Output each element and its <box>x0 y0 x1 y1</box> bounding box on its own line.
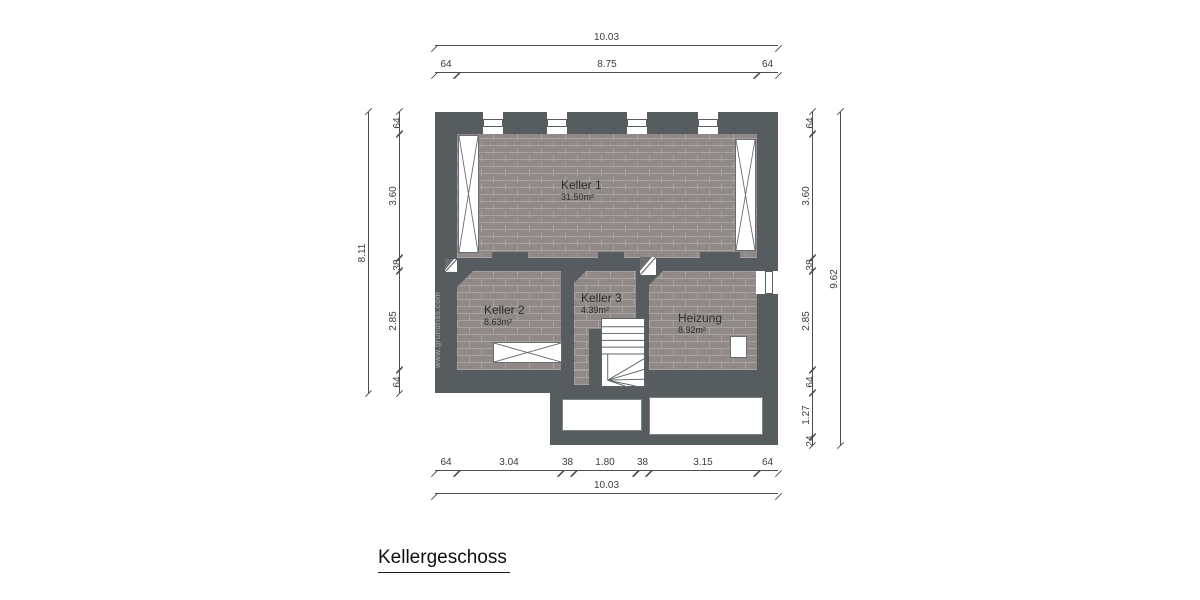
dim-label: 64 <box>392 376 403 387</box>
extension-opening-left <box>562 399 642 431</box>
dim-bottom-seg-2: 38 <box>561 456 574 471</box>
room-label-keller2: Keller 2 8.63m² <box>484 304 525 328</box>
dim-left-seg-3: 2.85 <box>385 271 400 370</box>
room-area: 8.92m² <box>678 325 722 335</box>
dim-right-seg-3: 2.85 <box>798 271 813 370</box>
chimney-block <box>730 336 747 358</box>
dim-right-seg-6: 24 <box>798 437 813 445</box>
dim-bottom-seg-1: 3.04 <box>457 456 561 471</box>
extension-opening-right <box>649 397 763 435</box>
room-name: Heizung <box>678 312 722 325</box>
x-brace-icon <box>459 136 478 252</box>
dim-bottom-total: 10.03 <box>435 479 778 494</box>
dim-label: 3.60 <box>388 186 399 205</box>
window-icon <box>483 112 503 134</box>
dim-right-seg-2: 38 <box>798 258 813 271</box>
dim-label: 2.85 <box>388 311 399 330</box>
room-name: Keller 2 <box>484 304 525 317</box>
dim-label: 3.15 <box>693 457 712 468</box>
dim-label: 3.04 <box>499 457 518 468</box>
door-swing-icon <box>640 257 656 275</box>
wall-pilaster <box>492 252 528 258</box>
dim-right-seg-0: 64 <box>798 112 813 134</box>
dim-left-seg-4: 64 <box>385 370 400 393</box>
stair-treads-icon <box>602 319 644 386</box>
dim-bottom-seg-4: 38 <box>636 456 649 471</box>
dim-label: 24 <box>805 435 816 446</box>
window-icon <box>698 112 718 134</box>
dim-bottom-seg-0: 64 <box>435 456 457 471</box>
dim-right-total: 9.62 <box>826 112 841 445</box>
room-label-keller3: Keller 3 4.39m² <box>581 292 622 316</box>
dim-label: 64 <box>762 457 773 468</box>
page-title: Kellergeschoss <box>378 547 510 573</box>
window-icon <box>627 112 647 134</box>
floor-plan-canvas: Keller 1 31.50m² Keller 2 8.63m² Keller … <box>0 0 1200 600</box>
shaft-right <box>735 139 756 251</box>
staircase <box>601 318 645 387</box>
dim-label: 64 <box>805 117 816 128</box>
dim-label: 64 <box>440 457 451 468</box>
room-keller1-floor <box>457 134 757 258</box>
dim-bottom-seg-3: 1.80 <box>574 456 636 471</box>
dim-bottom-seg-5: 3.15 <box>649 456 757 471</box>
dim-label: 1.80 <box>595 457 614 468</box>
room-area: 8.63m² <box>484 317 525 327</box>
window-frame <box>698 119 718 127</box>
room-label-heizung: Heizung 8.92m² <box>678 312 722 336</box>
dim-top-seg-0: 64 <box>435 58 457 73</box>
dim-label: 64 <box>440 59 451 70</box>
dim-top-seg-1: 8.75 <box>457 58 757 73</box>
wall-pilaster <box>598 252 624 258</box>
dim-label: 38 <box>562 457 573 468</box>
dim-left-seg-1: 3.60 <box>385 134 400 258</box>
dim-left-seg-0: 64 <box>385 112 400 134</box>
dim-label: 10.03 <box>594 32 619 43</box>
dim-label: 38 <box>637 457 648 468</box>
dim-bottom-seg-6: 64 <box>757 456 778 471</box>
dim-left-seg-2: 38 <box>385 258 400 271</box>
window-frame <box>547 119 567 127</box>
room-label-keller1: Keller 1 31.50m² <box>561 179 602 203</box>
dim-left-total: 8.11 <box>354 112 369 393</box>
dim-label: 10.03 <box>594 480 619 491</box>
room-name: Keller 3 <box>581 292 622 305</box>
window-frame <box>483 119 503 127</box>
room-name: Keller 1 <box>561 179 602 192</box>
dim-label: 8.11 <box>357 243 368 262</box>
door-icon <box>640 257 656 275</box>
dim-label: 1.27 <box>801 405 812 424</box>
window-icon <box>547 112 567 134</box>
window-frame <box>627 119 647 127</box>
lightwell-keller2 <box>493 342 562 363</box>
dim-label: 64 <box>805 376 816 387</box>
dim-right-seg-5: 1.27 <box>798 393 813 437</box>
dim-label: 9.62 <box>829 269 840 288</box>
window-icon <box>756 271 783 294</box>
watermark: www.grundriss.com <box>433 278 442 368</box>
dim-right-seg-1: 3.60 <box>798 134 813 258</box>
door-icon <box>445 259 457 272</box>
dim-label: 2.85 <box>801 311 812 330</box>
door-swing-icon <box>445 259 457 272</box>
dim-right-seg-4: 64 <box>798 370 813 393</box>
dim-top-total: 10.03 <box>435 31 778 46</box>
x-brace-icon <box>494 343 561 362</box>
dim-top-seg-2: 64 <box>757 58 778 73</box>
wall-pilaster <box>700 252 740 258</box>
room-area: 4.39m² <box>581 305 622 315</box>
dim-label: 64 <box>392 117 403 128</box>
room-area: 31.50m² <box>561 192 602 202</box>
stair-spandrel-wall <box>589 329 601 387</box>
window-frame <box>765 271 773 294</box>
dim-label: 64 <box>762 59 773 70</box>
shaft-left <box>458 135 479 253</box>
dim-label: 8.75 <box>597 59 616 70</box>
dim-label: 3.60 <box>801 186 812 205</box>
x-brace-icon <box>736 140 755 250</box>
